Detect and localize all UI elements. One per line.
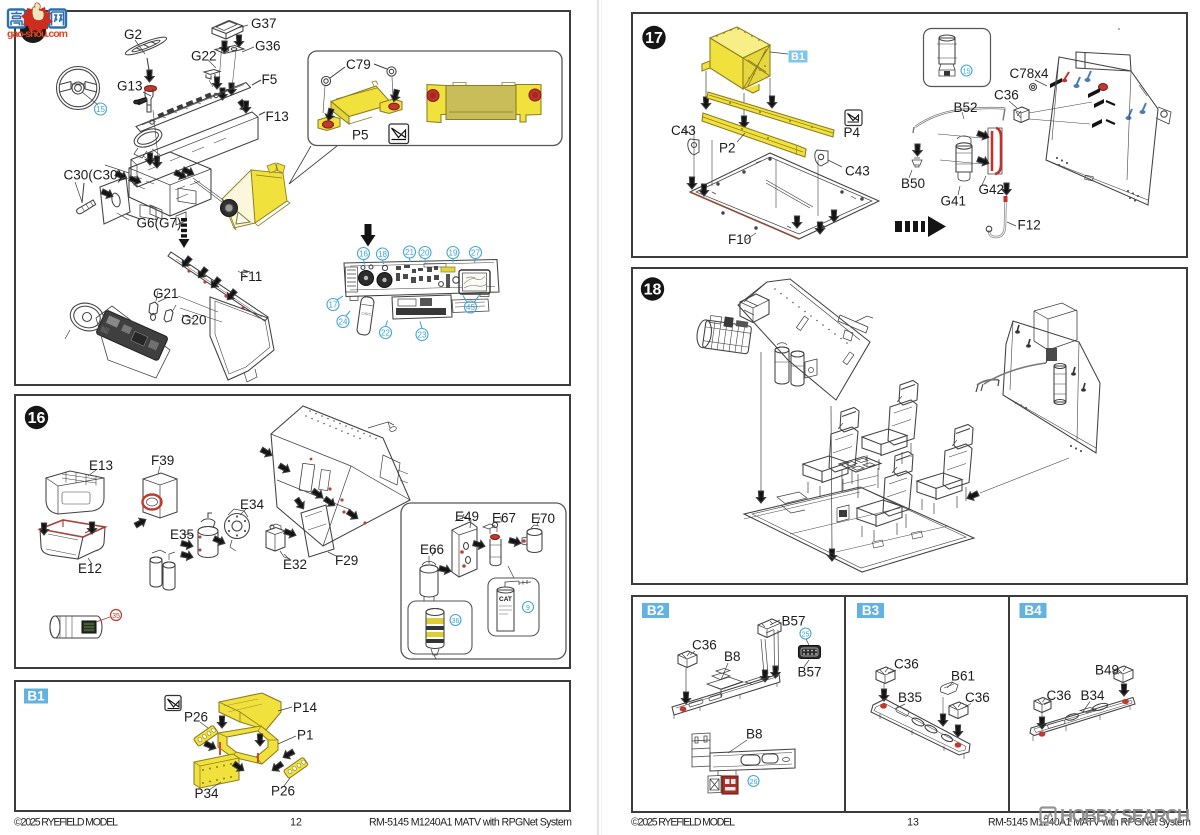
svg-text:E66: E66: [420, 542, 444, 557]
svg-text:B35: B35: [898, 690, 922, 705]
svg-text:HOBBY SEARCH: HOBBY SEARCH: [1060, 806, 1190, 826]
svg-text:18: 18: [378, 250, 387, 259]
svg-text:P34: P34: [195, 786, 220, 801]
svg-text:13: 13: [907, 817, 919, 829]
svg-text:E35: E35: [170, 527, 194, 542]
svg-text:36: 36: [452, 618, 460, 625]
svg-text:45: 45: [466, 303, 475, 312]
svg-text:B1: B1: [27, 689, 45, 704]
svg-text:©2025 RYEFIELD MODEL: ©2025 RYEFIELD MODEL: [631, 817, 735, 829]
svg-text:B2: B2: [647, 603, 664, 618]
svg-text:17: 17: [645, 30, 663, 47]
svg-text:F12: F12: [1018, 218, 1041, 233]
svg-text:16: 16: [359, 250, 368, 259]
svg-text:G13: G13: [117, 79, 143, 94]
svg-text:C36: C36: [692, 638, 717, 653]
svg-text:B52: B52: [954, 100, 978, 115]
svg-text:E67: E67: [492, 511, 516, 526]
svg-text:F11: F11: [240, 269, 262, 284]
svg-text:B34: B34: [1081, 688, 1106, 703]
svg-text:22: 22: [381, 329, 390, 338]
svg-text:C78x4: C78x4: [1010, 66, 1050, 81]
svg-text:20: 20: [421, 249, 430, 258]
svg-text:G37: G37: [251, 16, 277, 31]
svg-text:B3: B3: [862, 603, 880, 618]
svg-text:B57: B57: [782, 614, 806, 629]
svg-text:G20: G20: [181, 313, 207, 328]
svg-text:P26: P26: [271, 784, 295, 799]
svg-text:17: 17: [329, 301, 338, 310]
svg-text:16: 16: [28, 410, 46, 427]
svg-text:©2025 RYEFIELD MODEL: ©2025 RYEFIELD MODEL: [14, 817, 118, 829]
svg-text:G22: G22: [191, 49, 217, 64]
svg-text:F10: F10: [728, 232, 751, 247]
svg-text:F39: F39: [151, 453, 174, 468]
svg-text:B50: B50: [901, 176, 925, 191]
svg-text:19: 19: [449, 249, 458, 258]
svg-text:C43: C43: [671, 123, 696, 138]
svg-text:9: 9: [526, 605, 530, 612]
svg-text:E70: E70: [531, 511, 555, 526]
svg-text:G6(G7): G6(G7): [137, 216, 182, 231]
svg-text:C36: C36: [894, 657, 919, 672]
svg-text:P14: P14: [293, 700, 318, 715]
svg-text:CAT: CAT: [499, 596, 512, 603]
svg-text:24: 24: [339, 318, 348, 327]
svg-text:C36: C36: [1047, 688, 1072, 703]
svg-text:C36: C36: [994, 88, 1019, 103]
svg-text:P5: P5: [352, 128, 369, 143]
svg-text:F5: F5: [262, 72, 278, 87]
svg-text:26: 26: [750, 779, 758, 786]
svg-text:E49: E49: [455, 509, 479, 524]
svg-text:G42: G42: [979, 182, 1005, 197]
svg-text:B4: B4: [1024, 603, 1042, 618]
svg-text:C36: C36: [965, 690, 990, 705]
svg-text:G21: G21: [153, 286, 179, 301]
svg-text:gao-shou.com: gao-shou.com: [7, 28, 68, 40]
svg-text:B57: B57: [798, 665, 822, 680]
svg-text:E12: E12: [78, 561, 102, 576]
svg-text:G41: G41: [941, 194, 967, 209]
svg-text:P1: P1: [297, 728, 314, 743]
svg-text:B49: B49: [1095, 663, 1119, 678]
svg-text:E13: E13: [89, 458, 113, 473]
svg-text:G36: G36: [255, 39, 281, 54]
svg-text:23: 23: [418, 331, 427, 340]
svg-text:25: 25: [802, 632, 810, 639]
svg-text:P4: P4: [844, 125, 861, 140]
svg-text:27: 27: [471, 249, 480, 258]
svg-text:C43: C43: [845, 164, 870, 179]
svg-text:C30(C30): C30(C30): [64, 168, 123, 183]
svg-text:P2: P2: [719, 141, 736, 156]
svg-text:P26: P26: [184, 710, 208, 725]
svg-text:F29: F29: [335, 553, 358, 568]
svg-text:F13: F13: [266, 109, 289, 124]
svg-text:B8: B8: [724, 649, 741, 664]
svg-text:B1: B1: [791, 51, 805, 63]
svg-text:21: 21: [405, 248, 414, 257]
svg-text:35: 35: [112, 613, 120, 620]
svg-text:12: 12: [290, 817, 302, 829]
svg-text:RM-5145 M1240A1 MATV with RPGN: RM-5145 M1240A1 MATV with RPGNet System: [369, 817, 572, 829]
svg-text:C79: C79: [346, 57, 371, 72]
svg-text:B8: B8: [746, 727, 763, 742]
svg-text:E34: E34: [240, 497, 265, 512]
svg-text:18: 18: [644, 282, 662, 299]
svg-text:G2: G2: [124, 27, 142, 42]
svg-text:B61: B61: [951, 669, 975, 684]
svg-text:15: 15: [96, 105, 105, 114]
svg-text:E32: E32: [283, 557, 307, 572]
svg-text:15: 15: [963, 69, 971, 76]
